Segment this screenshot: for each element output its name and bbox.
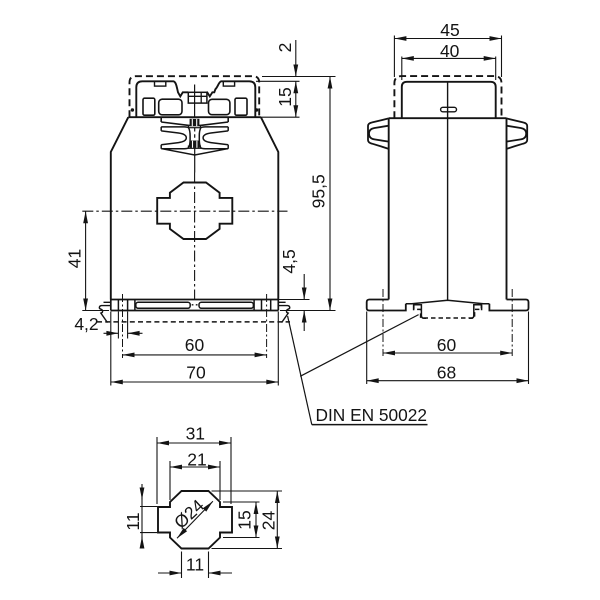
svg-text:68: 68 bbox=[437, 362, 456, 382]
svg-text:24: 24 bbox=[259, 511, 279, 531]
svg-text:41: 41 bbox=[65, 249, 85, 268]
svg-text:15: 15 bbox=[235, 510, 255, 529]
svg-text:45: 45 bbox=[440, 20, 459, 40]
svg-text:4,2: 4,2 bbox=[74, 314, 98, 334]
svg-text:4,5: 4,5 bbox=[279, 249, 299, 273]
svg-text:31: 31 bbox=[186, 424, 205, 444]
svg-text:95,5: 95,5 bbox=[309, 174, 329, 208]
svg-text:40: 40 bbox=[440, 41, 460, 61]
svg-text:11: 11 bbox=[186, 555, 204, 575]
svg-text:Ø24: Ø24 bbox=[170, 495, 208, 532]
svg-text:70: 70 bbox=[186, 362, 206, 382]
svg-text:DIN EN 50022: DIN EN 50022 bbox=[316, 405, 427, 425]
svg-text:60: 60 bbox=[437, 335, 457, 355]
svg-text:11: 11 bbox=[123, 512, 143, 530]
svg-text:21: 21 bbox=[187, 450, 206, 470]
svg-text:15: 15 bbox=[275, 87, 295, 106]
svg-text:2: 2 bbox=[275, 43, 295, 53]
svg-text:60: 60 bbox=[185, 335, 205, 355]
